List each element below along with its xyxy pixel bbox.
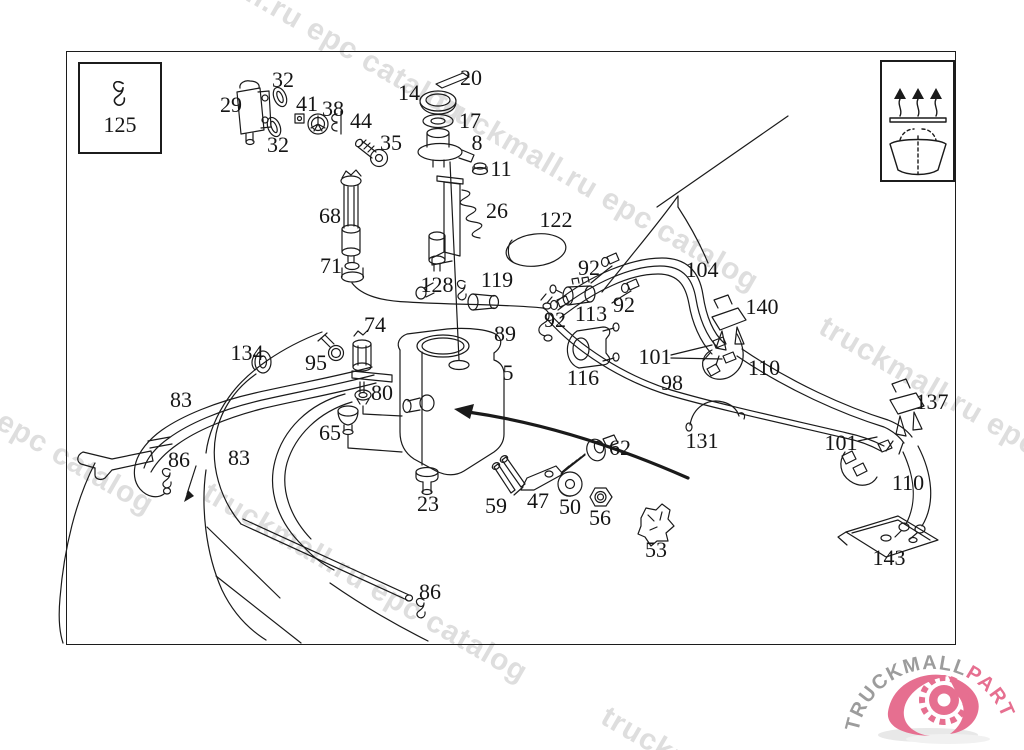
- part-label-86: 86: [168, 449, 190, 471]
- filter-119: [468, 294, 499, 310]
- seal-rings-32: [265, 85, 290, 138]
- part-label-71: 71: [320, 255, 342, 277]
- part-label-119: 119: [481, 269, 513, 291]
- part-label-86: 86: [419, 581, 441, 603]
- grommet-71: [342, 263, 364, 283]
- part-label-89: 89: [494, 323, 516, 345]
- washer-50: [558, 472, 582, 496]
- part-label-50: 50: [559, 496, 581, 518]
- part-label-128: 128: [421, 274, 454, 296]
- legend-code-125: 125: [104, 114, 137, 136]
- part-label-116: 116: [567, 367, 599, 389]
- part-label-110: 110: [892, 472, 924, 494]
- part-label-59: 59: [485, 495, 507, 517]
- fitting-101-lower: [858, 437, 892, 452]
- part-label-92: 92: [578, 257, 600, 279]
- part-label-143: 143: [873, 547, 906, 569]
- part-label-35: 35: [380, 132, 402, 154]
- parts-diagram-page: truckmall.ru epc catalogtruckmall.ru epc…: [0, 0, 1024, 750]
- part-label-83: 83: [228, 447, 250, 469]
- nut-56: [590, 488, 612, 506]
- windshield-defroster-icon: [886, 66, 950, 176]
- grommet-65: [338, 406, 402, 452]
- part-label-47: 47: [527, 490, 549, 512]
- pointer-arrow: [454, 404, 688, 478]
- part-label-44: 44: [350, 110, 372, 132]
- part-label-20: 20: [460, 67, 482, 89]
- part-label-92: 92: [613, 294, 635, 316]
- pump-68: [341, 170, 361, 262]
- part-label-26: 26: [486, 200, 508, 222]
- part-label-38: 38: [322, 98, 344, 120]
- part-label-41: 41: [296, 93, 318, 115]
- part-label-53: 53: [645, 539, 667, 561]
- legend-box-defroster: [880, 60, 955, 182]
- bracket-coil-26: [429, 176, 482, 271]
- hose-clip-icon: [109, 81, 131, 109]
- part-label-29: 29: [220, 94, 242, 116]
- part-label-65: 65: [319, 422, 341, 444]
- part-label-137: 137: [916, 391, 949, 413]
- part-label-131: 131: [686, 430, 719, 452]
- nozzle-140: [703, 295, 746, 365]
- part-label-8: 8: [472, 132, 483, 154]
- part-label-68: 68: [319, 205, 341, 227]
- part-label-80: 80: [371, 382, 393, 404]
- part-label-140: 140: [746, 296, 779, 318]
- part-label-32: 32: [267, 134, 289, 156]
- part-label-134: 134: [231, 342, 264, 364]
- logo-text: TRUCKMALLPARTS: [836, 634, 1019, 733]
- part-label-104: 104: [686, 259, 719, 281]
- part-label-95: 95: [305, 352, 327, 374]
- part-label-98: 98: [661, 372, 683, 394]
- reservoir-5: [398, 328, 504, 474]
- part-label-92: 92: [544, 309, 566, 331]
- wire-131: [686, 401, 745, 431]
- part-label-110: 110: [748, 357, 780, 379]
- hose-110-lower: [841, 451, 877, 485]
- legend-box-125: 125: [78, 62, 162, 154]
- part-label-14: 14: [398, 82, 420, 104]
- part-label-17: 17: [459, 110, 481, 132]
- part-label-113: 113: [575, 303, 607, 325]
- part-label-5: 5: [503, 362, 514, 384]
- part-label-83: 83: [170, 389, 192, 411]
- part-label-32: 32: [272, 69, 294, 91]
- part-label-56: 56: [589, 507, 611, 529]
- clip-128: [457, 281, 466, 300]
- part-label-101: 101: [639, 346, 672, 368]
- container-122: [504, 230, 567, 269]
- washer-pump-29: [237, 81, 271, 145]
- part-label-101: 101: [825, 432, 858, 454]
- pins-59: [491, 454, 525, 493]
- part-label-74: 74: [364, 314, 386, 336]
- part-label-11: 11: [490, 158, 511, 180]
- part-label-62: 62: [609, 437, 631, 459]
- part-label-23: 23: [417, 493, 439, 515]
- truckmallparts-logo[interactable]: TRUCKMALLPARTS: [836, 634, 1024, 750]
- part-label-122: 122: [540, 209, 573, 231]
